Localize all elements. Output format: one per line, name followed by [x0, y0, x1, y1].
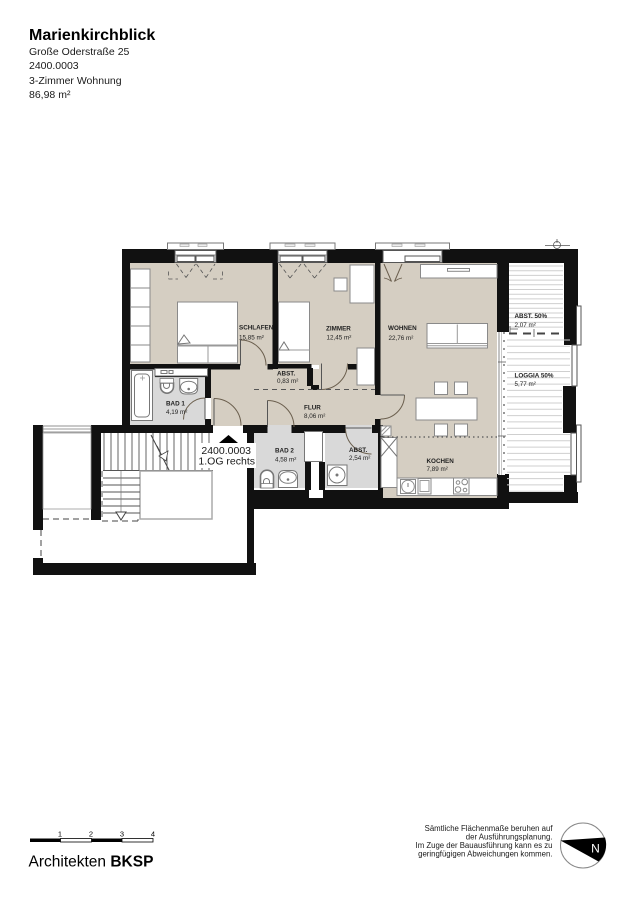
svg-text:3: 3 [120, 830, 124, 839]
svg-text:12,45 m²: 12,45 m² [327, 335, 352, 342]
svg-text:22,76 m²: 22,76 m² [389, 335, 414, 342]
svg-text:2: 2 [89, 830, 93, 839]
svg-text:8,06 m²: 8,06 m² [304, 413, 325, 420]
svg-text:ABST. 50%: ABST. 50% [515, 313, 548, 320]
svg-text:4: 4 [151, 830, 155, 839]
svg-text:1: 1 [58, 830, 62, 839]
svg-text:FLUR: FLUR [304, 405, 321, 412]
svg-text:Architekten BKSP: Architekten BKSP [29, 854, 154, 871]
svg-text:BAD 2: BAD 2 [275, 448, 294, 455]
svg-text:WOHNEN: WOHNEN [388, 325, 417, 332]
svg-text:geringfügigen Abweichungen kom: geringfügigen Abweichungen kommen. [418, 850, 552, 859]
svg-text:N: N [591, 842, 600, 856]
svg-text:KOCHEN: KOCHEN [427, 458, 455, 465]
svg-text:ABST.: ABST. [277, 371, 295, 378]
svg-text:ZIMMER: ZIMMER [326, 326, 351, 333]
svg-text:2,54 m²: 2,54 m² [349, 455, 370, 462]
svg-text:15,85 m²: 15,85 m² [239, 335, 264, 342]
svg-text:2,07 m²: 2,07 m² [515, 322, 536, 329]
svg-text:0,83 m²: 0,83 m² [277, 378, 298, 385]
svg-text:5,77 m²: 5,77 m² [515, 381, 536, 388]
svg-text:7,89 m²: 7,89 m² [427, 466, 448, 473]
svg-text:4,58 m²: 4,58 m² [275, 457, 296, 464]
svg-text:BAD 1: BAD 1 [166, 401, 185, 408]
svg-text:SCHLAFEN: SCHLAFEN [239, 325, 274, 332]
svg-text:1.OG rechts: 1.OG rechts [198, 456, 255, 468]
svg-text:LOGGIA 50%: LOGGIA 50% [515, 373, 554, 380]
svg-text:ABST.: ABST. [349, 447, 367, 454]
svg-text:4,19 m²: 4,19 m² [166, 409, 187, 416]
